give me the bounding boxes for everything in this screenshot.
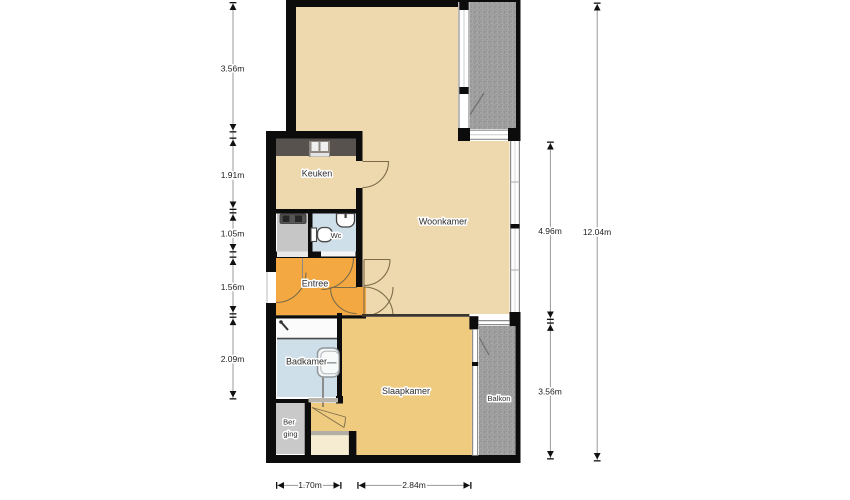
svg-text:3.56m: 3.56m <box>221 64 245 74</box>
svg-text:1.05m: 1.05m <box>221 229 245 239</box>
svg-text:Entree: Entree <box>302 279 329 289</box>
svg-text:4.96m: 4.96m <box>538 226 562 236</box>
svg-text:1.56m: 1.56m <box>221 282 245 292</box>
svg-text:Woonkamer: Woonkamer <box>419 217 467 227</box>
svg-text:Badkamer: Badkamer <box>286 357 327 367</box>
svg-text:1.70m: 1.70m <box>298 480 322 490</box>
svg-text:Ber: Ber <box>283 418 295 427</box>
svg-text:2.84m: 2.84m <box>402 480 426 490</box>
svg-text:Wc: Wc <box>331 231 342 240</box>
svg-text:2.09m: 2.09m <box>221 354 245 364</box>
svg-text:ging: ging <box>283 430 297 439</box>
svg-text:Balkon: Balkon <box>488 394 511 403</box>
svg-text:Keuken: Keuken <box>302 169 333 179</box>
svg-text:Slaapkamer: Slaapkamer <box>382 386 430 396</box>
svg-text:3.56m: 3.56m <box>538 387 562 397</box>
svg-text:12.04m: 12.04m <box>583 227 611 237</box>
svg-text:1.91m: 1.91m <box>221 170 245 180</box>
